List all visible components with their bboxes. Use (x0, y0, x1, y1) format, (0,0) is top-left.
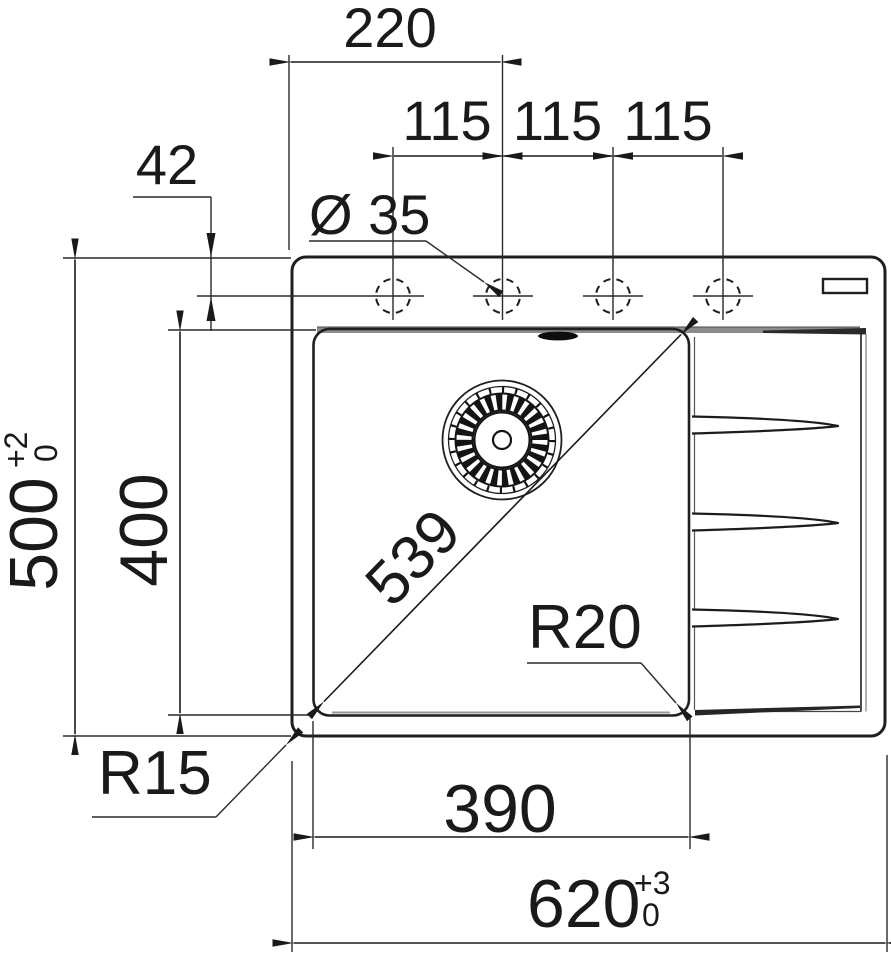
dim-label-dia35: Ø 35 (309, 183, 430, 246)
dim-620: 620 +3 0 (292, 755, 887, 952)
dim-label-390: 390 (443, 771, 556, 847)
dim-label-115-1: 115 (402, 89, 491, 152)
dim-r15: R15 (92, 739, 286, 817)
dim-390: 390 (313, 718, 690, 849)
dim-label-115-3: 115 (623, 89, 712, 152)
dim-label-r15: R15 (98, 739, 212, 808)
overflow-hole (823, 279, 867, 293)
dim-label-620-tol-plus: +3 (634, 865, 670, 901)
drainboard (692, 334, 866, 716)
dim-label-115-2: 115 (513, 89, 602, 152)
dim-label-r20: R20 (528, 593, 642, 662)
dim-label-220: 220 (343, 0, 436, 59)
sink-dimension-drawing: 220 115 115 115 42 (0, 0, 891, 960)
dimensions: 220 115 115 115 42 (0, 0, 887, 952)
dim-label-500-tol-minus: 0 (28, 444, 64, 462)
dim-label-500: 500 (0, 477, 72, 590)
dim-dia35: Ø 35 (309, 183, 484, 282)
dim-label-620-tol-minus: 0 (642, 897, 660, 933)
dim-r20: R20 (527, 593, 676, 703)
dim-label-620: 620 (527, 866, 640, 942)
sink-body (292, 257, 885, 736)
drainboard-bottom-shade (695, 706, 860, 716)
drainboard-groove-2 (692, 514, 838, 531)
drainboard-groove-1 (692, 417, 838, 434)
dim-115-group: 115 115 115 (393, 55, 723, 320)
dim-400: 400 (106, 330, 316, 715)
drawing-page: 220 115 115 115 42 (0, 0, 891, 960)
dim-label-400: 400 (106, 473, 182, 586)
overflow-slot (538, 332, 578, 341)
drainboard-groove-3 (692, 610, 838, 627)
dim-label-539: 539 (353, 497, 474, 619)
dim-label-42: 42 (136, 133, 198, 196)
tap-holes (376, 279, 753, 313)
drain-strainer (443, 381, 562, 500)
